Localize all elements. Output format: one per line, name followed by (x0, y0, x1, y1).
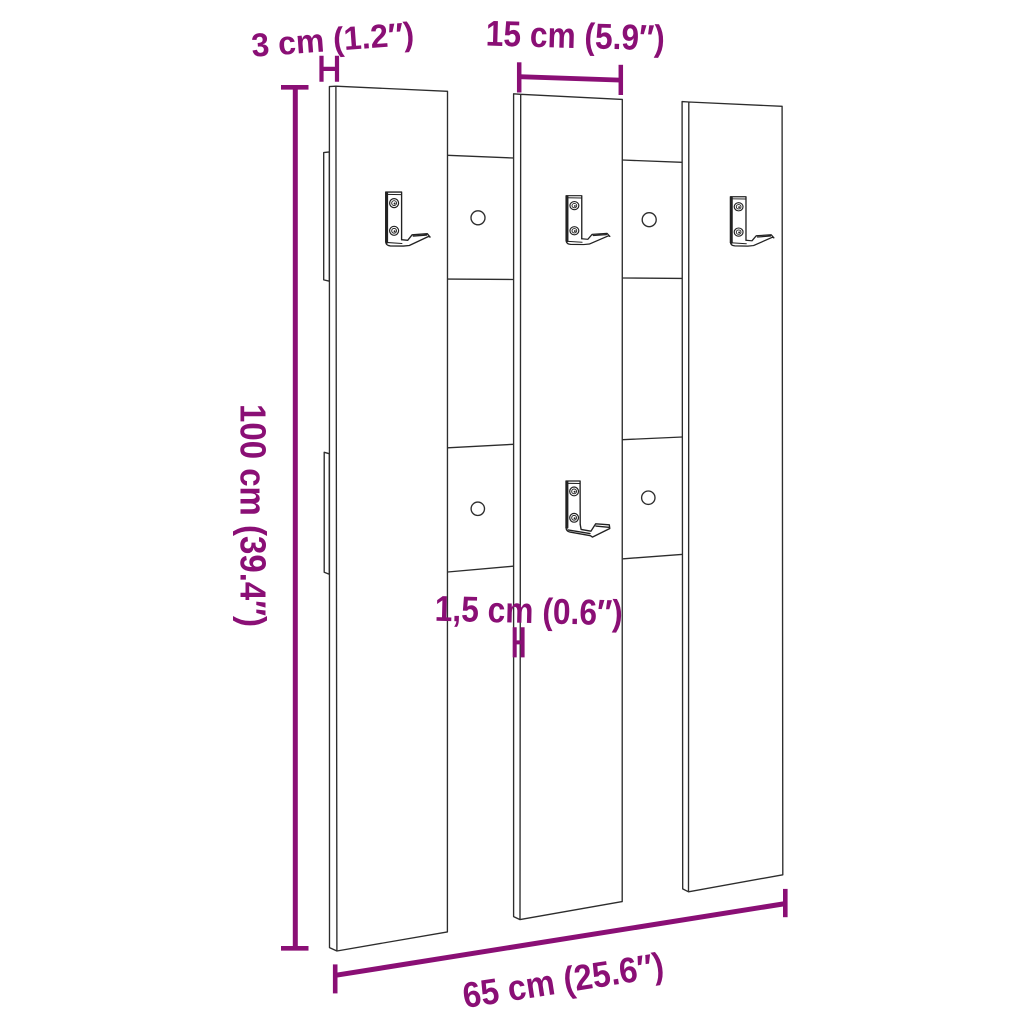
svg-text:1,5 cm (0.6″): 1,5 cm (0.6″) (434, 588, 623, 634)
svg-text:100 cm (39.4″): 100 cm (39.4″) (233, 404, 274, 627)
svg-text:15 cm (5.9″): 15 cm (5.9″) (485, 13, 665, 59)
